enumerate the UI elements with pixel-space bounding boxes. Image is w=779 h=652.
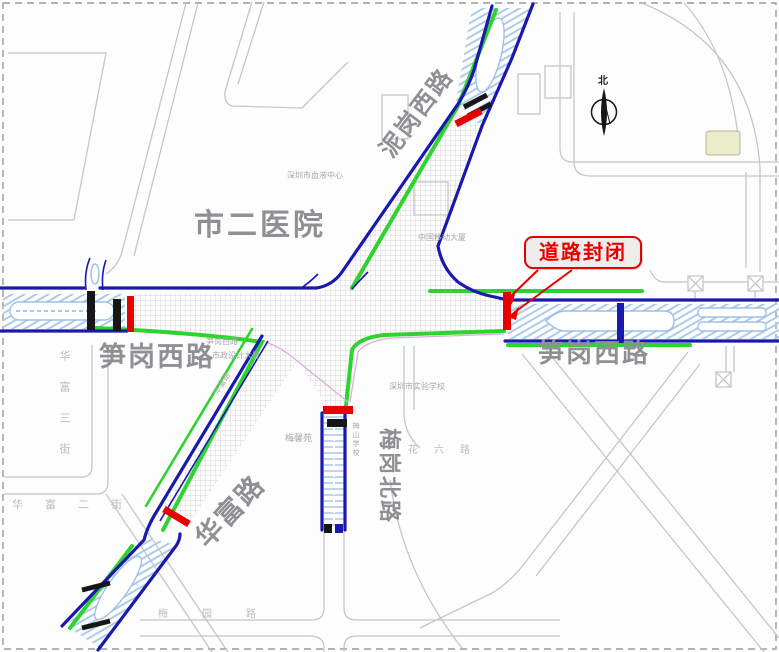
- road-closed-badge: 道路封闭: [524, 236, 642, 269]
- meigang-road-label: 梅岗北路: [378, 428, 400, 524]
- sungang-road-label-west: 笋岗西路: [99, 344, 215, 371]
- huafu-3rd-street-label: 华富三街: [58, 350, 69, 474]
- mobile-building-label: 中国移动大厦: [418, 234, 466, 242]
- sungang-small-label: 笋岗西路: [206, 338, 238, 346]
- experimental-school-label: 深圳市实验学校: [389, 383, 445, 391]
- road-closure-map: 市二医院 泥岗西路 笋岗西路 笋岗西路 华富路 梅岗北路 道路封闭 北 深圳市血…: [0, 0, 779, 652]
- blood-center-label: 深圳市血液中心: [287, 172, 343, 180]
- north-label: 北: [598, 72, 608, 87]
- sungang-road-label-east: 笋岗西路: [538, 340, 650, 366]
- meixin-court-label: 梅馨苑: [285, 434, 312, 443]
- park-block: [706, 131, 740, 155]
- hospital-label: 市二医院: [194, 211, 326, 241]
- meishan-school-label: 梅山学校: [352, 422, 359, 458]
- meiyuan-road-label: 梅园路: [158, 610, 290, 620]
- huafu-2nd-street-label: 华富二街: [12, 500, 144, 511]
- north-arrow-icon: [592, 88, 617, 136]
- map-drawing: [0, 0, 779, 652]
- hualiu-road-label: 花六路: [408, 446, 486, 456]
- design-institute-label: 市政设计大厦: [212, 352, 260, 360]
